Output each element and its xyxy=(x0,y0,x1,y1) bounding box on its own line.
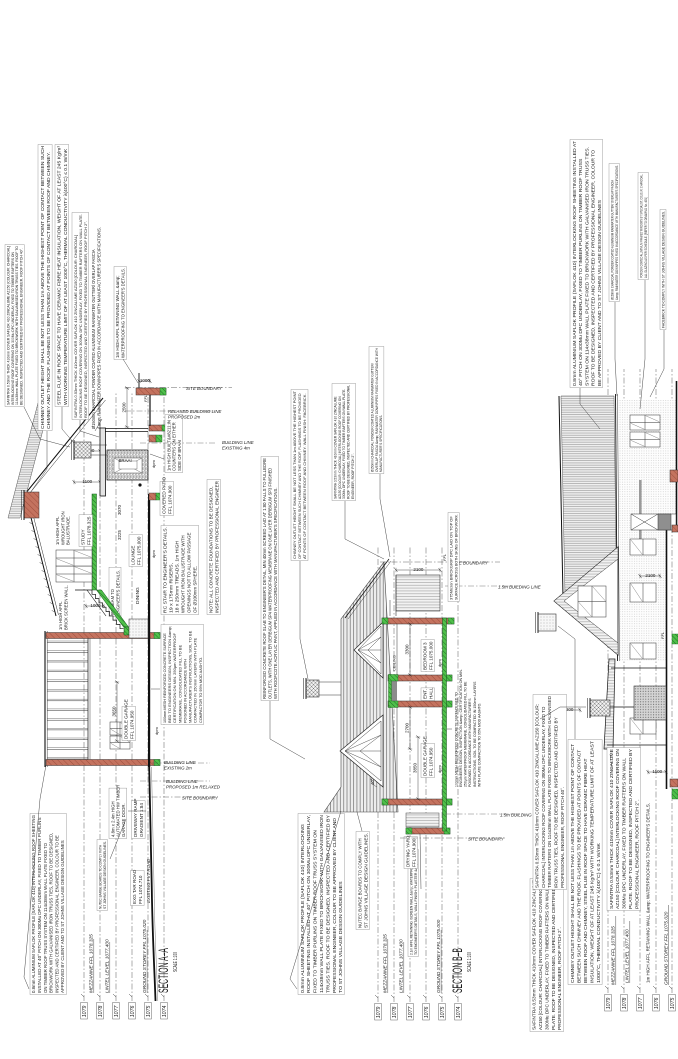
svg-text:1074: 1074 xyxy=(162,1006,168,1018)
svg-text:1074: 1074 xyxy=(456,1007,462,1019)
svg-text:AT POINTS OF CONTACT BETWEEN R: AT POINTS OF CONTACT BETWEEN ROOF AND CH… xyxy=(302,393,307,559)
svg-text:CEILING: CEILING xyxy=(392,655,397,671)
svg-text:Ø150mm CHARCOAL POWDER COATED: Ø150mm CHARCOAL POWDER COATED ALUMINIUM … xyxy=(610,179,614,300)
svg-text:INTERLOCKING ROOF COVERING ON: INTERLOCKING ROOF COVERING ON 300Mu DPC … xyxy=(11,251,15,405)
svg-text:BUILDING LINE: BUILDING LINE xyxy=(166,779,198,784)
svg-text:Ø150mm CHARCOAL POWDER COATED: Ø150mm CHARCOAL POWDER COATED ALUMINIUM … xyxy=(91,249,96,429)
svg-text:1076: 1076 xyxy=(424,1007,430,1019)
svg-text:ENGINEERS DESIGN, INSPECTION &: ENGINEERS DESIGN, INSPECTION &amp; CERTI… xyxy=(459,669,463,787)
svg-text:WITH PLATE COMPACTION TO 95% M: WITH PLATE COMPACTION TO 95% MOD AASHTO. xyxy=(477,703,481,787)
svg-text:LINTEL LEVEL 1077.400: LINTEL LEVEL 1077.400 xyxy=(105,939,111,993)
svg-text:&amp; RAINWATER DOWNPIPES FIXE: &amp; RAINWATER DOWNPIPES FIXED IN ACCOR… xyxy=(615,165,619,300)
svg-text:SITE BOUNDARY: SITE BOUNDARY xyxy=(182,796,219,801)
svg-text:0.8mm ALUMINIUM SAFLOK PROFILE: 0.8mm ALUMINIUM SAFLOK PROFILE [SAFLOK 4… xyxy=(31,815,36,993)
svg-text:FFL 1075.000: FFL 1075.000 xyxy=(429,641,434,670)
svg-text:SITE BOUNDARY: SITE BOUNDARY xyxy=(468,837,505,842)
svg-text:1000: 1000 xyxy=(90,603,101,608)
svg-text:SAFINTRA 0.53mm THICK 410mm CO: SAFINTRA 0.53mm THICK 410mm COVER SAFLOK… xyxy=(534,704,539,888)
svg-text:DINING: DINING xyxy=(135,587,141,604)
svg-text:FFL: FFL xyxy=(143,395,148,402)
svg-text:1000: 1000 xyxy=(140,378,151,383)
svg-text:WROUGHT IRON BALUSTRADE WITH: WROUGHT IRON BALUSTRADE WITH xyxy=(181,535,186,613)
svg-text:RELAXED BUILDING LINE: RELAXED BUILDING LINE xyxy=(168,409,222,414)
svg-text:LOUNGE: LOUNGE xyxy=(131,546,136,565)
svg-text:BETWEEN ROOF AND CHIMNEY, STEE: BETWEEN ROOF AND CHIMNEY, STEEL FLUE IN … xyxy=(583,758,589,983)
svg-text:NOTE: ALL CONCRETE FOUNDATIONS: NOTE: ALL CONCRETE FOUNDATIONS TO BE DES… xyxy=(209,487,214,614)
svg-text:&amp; RAINWATER DOWNPIPES FIXE: &amp; RAINWATER DOWNPIPES FIXED IN ACCOR… xyxy=(97,227,102,429)
svg-text:POISONED IN ACCORDANCE WITH MA: POISONED IN ACCORDANCE WITH MANUFACTURER… xyxy=(468,698,472,787)
svg-text:1078: 1078 xyxy=(98,1006,104,1018)
svg-text:AZ150 [COLOUR: CHARCOAL] INTER: AZ150 [COLOUR: CHARCOAL] INTERLOCKING RO… xyxy=(338,396,342,499)
svg-text:INSTALLED AT 40° PITCH ON 300M: INSTALLED AT 40° PITCH ON 300Mu DPC UNDE… xyxy=(37,817,42,993)
svg-text:1000°C, THERMAL CONDUCTIVITY λ: 1000°C, THERMAL CONDUCTIVITY λ(400°C) ≤ … xyxy=(596,842,602,983)
svg-text:ROOF TO BE DESIGNED, INSPECTED: ROOF TO BE DESIGNED, INSPECTED AND CERTI… xyxy=(347,385,351,499)
svg-text:INSTRUCTIONS, SOIL TO BE COMPA: INSTRUCTIONS, SOIL TO BE COMPACTED IN 15… xyxy=(473,681,477,787)
svg-text:EXG TAR ROAD: EXG TAR ROAD xyxy=(132,869,137,904)
svg-text:STEEL FLUE IN ROOF SPACE TO HA: STEEL FLUE IN ROOF SPACE TO HAVE CERAMIC… xyxy=(57,146,62,405)
svg-text:FFL: FFL xyxy=(442,554,447,561)
svg-text:ENGINEER'S DETAILS.: ENGINEER'S DETAILS. xyxy=(115,570,120,615)
svg-text:BETWEEN SUCH CHIMNEY AND THE R: BETWEEN SUCH CHIMNEY AND THE ROOF, FLASH… xyxy=(576,750,582,983)
svg-text:dpm: dpm xyxy=(437,765,442,773)
svg-text:2100: 2100 xyxy=(413,567,424,572)
svg-text:WITH ROOFCOTE ACRYLIC PAINT, A: WITH ROOFCOTE ACRYLIC PAINT, APPLIED IN … xyxy=(273,488,278,700)
svg-text:COMPACTOR TO 95% MOD AASHTO.: COMPACTOR TO 95% MOD AASHTO. xyxy=(198,657,203,723)
svg-text:BRICK SCREEN WALL.: BRICK SCREEN WALL. xyxy=(63,585,68,630)
svg-text:300Mu DPC UNDERLAY, FIXED TO T: 300Mu DPC UNDERLAY, FIXED TO TIMBER RAFT… xyxy=(342,389,346,499)
svg-text:SECTION B–B: SECTION B–B xyxy=(450,948,465,993)
svg-text:SURFACE ACROSS BOTH SKINS OF B: SURFACE ACROSS BOTH SKINS OF BRICKWORK. xyxy=(455,514,459,600)
svg-text:DRYING YARD: DRYING YARD xyxy=(406,835,411,867)
svg-text:SIDE OF BRAAI: SIDE OF BRAAI xyxy=(177,440,182,471)
svg-text:1077: 1077 xyxy=(638,997,644,1010)
svg-text:STUDY: STUDY xyxy=(81,529,86,545)
svg-text:1078: 1078 xyxy=(622,998,628,1010)
svg-text:EXISTING 4m: EXISTING 4m xyxy=(222,446,250,451)
svg-text:OF Ø100mm SPHERE.: OF Ø100mm SPHERE. xyxy=(193,566,198,613)
svg-text:3650: 3650 xyxy=(112,706,117,717)
svg-text:BUILDING LINE: BUILDING LINE xyxy=(222,440,254,445)
svg-text:OUTLETS, WITH ONE LAYER DERBIG: OUTLETS, WITH ONE LAYER DERBIGUM SP4 WAT… xyxy=(267,468,272,699)
svg-text:DOUBLE GARAGE: DOUBLE GARAGE xyxy=(423,736,428,776)
svg-text:OVERLAP FASCIA &amp; RAINWATER: OVERLAP FASCIA &amp; RAINWATER DOWNPIPES… xyxy=(375,347,379,472)
svg-text:AZ150 [COLOUR: CHARCOAL] INTER: AZ150 [COLOUR: CHARCOAL] INTERLOCKING RO… xyxy=(615,748,621,909)
svg-text:3300: 3300 xyxy=(405,644,410,655)
svg-text:WATERPROOFING TO ENGINEER'S DE: WATERPROOFING TO ENGINEER'S DETAILS. xyxy=(121,268,126,358)
svg-text:FFL 1074.950: FFL 1074.950 xyxy=(130,710,135,739)
svg-text:COUNTERS ON EITHER: COUNTERS ON EITHER xyxy=(172,422,177,471)
svg-text:1076: 1076 xyxy=(654,998,660,1010)
svg-text:19 x 175mm RISERS,: 19 x 175mm RISERS, xyxy=(169,563,174,613)
svg-text:CHARCOAL] INTERLOCKING ROOF CO: CHARCOAL] INTERLOCKING ROOF COVERING ON … xyxy=(541,706,546,888)
svg-text:40° PITCH ON 300Mu DPC UNDERLA: 40° PITCH ON 300Mu DPC UNDERLAY, FIXED T… xyxy=(578,159,584,386)
svg-text:PROPOSED 1m RELAXED: PROPOSED 1m RELAXED xyxy=(166,785,221,790)
svg-text:COVERED PATIO: COVERED PATIO xyxy=(162,476,167,514)
svg-text:ENT.: ENT. xyxy=(423,689,428,699)
svg-text:1076: 1076 xyxy=(130,1006,136,1018)
svg-text:FFL 1074.950: FFL 1074.950 xyxy=(429,747,434,776)
svg-text:1100: 1100 xyxy=(652,769,662,774)
svg-text:ROOF TO BE DESIGNED, INSPECTED: ROOF TO BE DESIGNED, INSPECTED AND CERTI… xyxy=(84,221,88,418)
svg-text:1079: 1079 xyxy=(82,1006,88,1018)
svg-text:SAFINTRA 0.53mm THICK 410mm CO: SAFINTRA 0.53mm THICK 410mm COVER SAFLOK… xyxy=(74,235,78,418)
svg-text:114x38mm WALL PLATE FIXED TO B: 114x38mm WALL PLATE FIXED TO BRICKWORK W… xyxy=(319,814,325,993)
svg-text:40°: 40° xyxy=(370,778,375,785)
svg-text:SECTION A–A: SECTION A–A xyxy=(156,948,171,993)
svg-text:CHIMNEY OUTLET HEIGHT SHALL BE: CHIMNEY OUTLET HEIGHT SHALL BE NOT LESS … xyxy=(570,744,576,983)
svg-text:TRUSS TIES. ROOF TO BE DESIGNE: TRUSS TIES. ROOF TO BE DESIGNED, INSPECT… xyxy=(325,814,331,993)
svg-text:RC STAIR TO ENGINEER'S DETAILS: RC STAIR TO ENGINEER'S DETAILS. xyxy=(163,527,168,613)
svg-text:1100: 1100 xyxy=(82,479,92,484)
svg-text:WITH WORKING TEMPERATURE LIMIT: WITH WORKING TEMPERATURE LIMIT OF AT LEA… xyxy=(63,148,68,405)
svg-text:ON TIMBER ROOF TRUSS SYSTEM ON: ON TIMBER ROOF TRUSS SYSTEM ON 114x38mm … xyxy=(43,842,48,993)
svg-text:1078: 1078 xyxy=(392,1007,398,1019)
svg-text:100mm MESH REINFORCED CONCRETE: 100mm MESH REINFORCED CONCRETE SURFACE B… xyxy=(455,692,459,787)
svg-text:SCALE 1:100: SCALE 1:100 xyxy=(467,952,473,972)
svg-text:2.1m AFFL RETAINING /SCREEN WA: 2.1m AFFL RETAINING /SCREEN WALL &amp; W… xyxy=(409,856,413,955)
svg-text:2100: 2100 xyxy=(645,573,656,578)
svg-text:BRICKWORK WITH GALVANISED IRON: BRICKWORK WITH GALVANISED IRON TRUSS TIE… xyxy=(49,833,54,993)
svg-text:CHIMNEY AND THE ROOF. FLASHING: CHIMNEY AND THE ROOF. FLASHINGS TO BE PR… xyxy=(46,152,52,429)
svg-text:PLATE. ROOF TO BE DESIGNED, IN: PLATE. ROOF TO BE DESIGNED, INSPECTED AN… xyxy=(628,748,634,909)
svg-text:ST JOHNS VILLAGE DESIGN GUIDEL: ST JOHNS VILLAGE DESIGN GUIDELINES. xyxy=(363,833,368,928)
svg-text:ROOF TO BE DESIGNED, INSPECTED: ROOF TO BE DESIGNED, INSPECTED AND CERTI… xyxy=(591,150,597,386)
svg-text:250μm WATERPROOF MEMBRANE, CON: 250μm WATERPROOF MEMBRANE, CONSOLIDATED … xyxy=(464,681,468,787)
svg-text:1075: 1075 xyxy=(146,1006,152,1018)
svg-text:CHIMNEY OUTLET HEIGHT SHALL BE: CHIMNEY OUTLET HEIGHT SHALL BE NOT LESS … xyxy=(40,145,46,429)
svg-text:1.5m BUILDING LINE: 1.5m BUILDING LINE xyxy=(498,585,541,590)
svg-text:dpm: dpm xyxy=(437,659,442,667)
svg-text:BEDROOM 3: BEDROOM 3 xyxy=(423,642,428,670)
svg-text:dpm: dpm xyxy=(151,550,156,558)
svg-text:PROFESSIONAL ENGINEER, ROOF PI: PROFESSIONAL ENGINEER, ROOF PITCH 40°. xyxy=(560,787,565,888)
svg-text:0.8mm ALUMINIUM SAFLOK PROFILE: 0.8mm ALUMINIUM SAFLOK PROFILE (SAFLOK 4… xyxy=(572,141,578,386)
svg-text:BE DESIGNED, INSPECTED AND CER: BE DESIGNED, INSPECTED AND CERTIFIED BY … xyxy=(20,248,24,405)
svg-text:ST JOHNS VILLAGE DESIGN GUIDEL: ST JOHNS VILLAGE DESIGN GUIDELINES. xyxy=(103,841,107,909)
svg-text:1075: 1075 xyxy=(670,998,676,1010)
svg-text:NUTEC BARGE BOARDS TO COMPLY W: NUTEC BARGE BOARDS TO COMPLY WITH xyxy=(98,844,102,909)
svg-text:GRADIENT 1:84: GRADIENT 1:84 xyxy=(139,803,144,837)
svg-text:IRON TRUSS TIES, ROOF TO BE DE: IRON TRUSS TIES, ROOF TO BE DESIGNED, IN… xyxy=(554,717,559,888)
svg-text:300Mu DPC UNDERLAY, FIXED TO T: 300Mu DPC UNDERLAY, FIXED TO TIMBER RAFT… xyxy=(544,888,549,1030)
svg-text:2700: 2700 xyxy=(405,722,410,733)
svg-text:FFL 1074.900: FFL 1074.900 xyxy=(412,838,417,867)
svg-text:AUTOMATED HW TIMBER: AUTOMATED HW TIMBER xyxy=(116,785,121,837)
svg-text:18 x 250mm TREADS. 1m HIGH: 18 x 250mm TREADS. 1m HIGH xyxy=(175,541,180,613)
svg-text:EXISTING PVT ROAD: EXISTING PVT ROAD xyxy=(146,858,151,903)
svg-text:1079: 1079 xyxy=(376,1007,382,1019)
svg-text:PROPOSED 2m: PROPOSED 2m xyxy=(168,415,201,420)
svg-text:PROFESSIONAL ENGINEER, COLOUR: PROFESSIONAL ENGINEER, COLOUR TO BE APPR… xyxy=(332,817,338,993)
svg-text:3850: 3850 xyxy=(413,762,418,773)
svg-text:INSULATION, WEIGHT OF AT LEAST: INSULATION, WEIGHT OF AT LEAST 245 Kg/m³… xyxy=(589,741,595,983)
svg-text:114x38mm WALL PLATE FIXED TO B: 114x38mm WALL PLATE FIXED TO BRICKWORK W… xyxy=(15,246,19,405)
svg-text:1m HIGH BUILT&#8211;IN: 1m HIGH BUILT&#8211;IN xyxy=(166,420,171,471)
svg-text:PLATE. ROOF TO BE DESIGNED, IN: PLATE. ROOF TO BE DESIGNED, INSPECTED AN… xyxy=(551,880,556,1030)
svg-text:REINFORCED CONCRETE ROOF SLAB: REINFORCED CONCRETE ROOF SLAB TO ENGINEE… xyxy=(262,458,267,699)
svg-text:SAFINTRA 0.53mm THICK 410mm CO: SAFINTRA 0.53mm THICK 410mm COVER SAFLOK… xyxy=(532,880,537,1030)
svg-text:DOUBLE GARAGE: DOUBLE GARAGE xyxy=(124,699,129,739)
svg-text:EXISTING 2m: EXISTING 2m xyxy=(164,766,192,771)
svg-text:SITE BOUNDARY: SITE BOUNDARY xyxy=(186,386,223,391)
svg-text:APPROVED BY CLIENT AND TO ST J: APPROVED BY CLIENT AND TO ST JOHNS VILLA… xyxy=(60,840,65,993)
svg-text:ROOF SHEETING INSTALLED AT 40°: ROOF SHEETING INSTALLED AT 40° PITCH ON … xyxy=(306,815,312,993)
svg-text:dpm: dpm xyxy=(154,727,159,735)
svg-text:3225: 3225 xyxy=(117,529,122,540)
svg-text:1077: 1077 xyxy=(114,1005,120,1018)
svg-text:1m HIGH AFFL RETAINING WALL &a: 1m HIGH AFFL RETAINING WALL &amp; xyxy=(115,276,120,359)
svg-text:BALUSTRADE.: BALUSTRADE. xyxy=(66,516,71,545)
svg-text:NUTEC BARGE BOARDS TO COMPLY W: NUTEC BARGE BOARDS TO COMPLY WITH xyxy=(358,838,363,928)
svg-text:1m HIGH AFFL RETAINING WALL &a: 1m HIGH AFFL RETAINING WALL &amp; WATERP… xyxy=(645,803,650,983)
svg-text:375Micron BRICKGRIP DPC LAID O: 375Micron BRICKGRIP DPC LAID ON TOP OF xyxy=(450,515,454,600)
svg-text:DRIVEWAY RAMP: DRIVEWAY RAMP xyxy=(133,799,138,837)
svg-text:MEZZANINE FFL 1078.325: MEZZANINE FFL 1078.325 xyxy=(89,934,95,993)
svg-text:FFL 1078.325: FFL 1078.325 xyxy=(87,516,92,545)
svg-text:OPENINGS NOT TO ALLOW PASSAGE: OPENINGS NOT TO ALLOW PASSAGE xyxy=(187,533,192,614)
svg-text:1075: 1075 xyxy=(440,1007,446,1019)
svg-text:SYSTEM ON 114x38mm WALL PLATE: SYSTEM ON 114x38mm WALL PLATE FIXED TO B… xyxy=(584,147,590,386)
svg-text:FACEBRICK TO COMPLY WITH ST JO: FACEBRICK TO COMPLY WITH ST JOHNS VILLAG… xyxy=(661,211,665,328)
svg-text:300Mu DPC UNDERLAY, FIXED TO T: 300Mu DPC UNDERLAY, FIXED TO TIMBER RAFT… xyxy=(622,758,628,909)
svg-text:ALL GLAZING AS PER SCHEDULE. [: ALL GLAZING AS PER SCHEDULE. [REFER TO D… xyxy=(644,197,648,278)
svg-text:1079: 1079 xyxy=(606,998,612,1010)
svg-text:dpm: dpm xyxy=(151,460,156,468)
svg-text:BRAAI: BRAAI xyxy=(119,458,132,463)
svg-text:3070: 3070 xyxy=(117,504,122,515)
svg-text:4.8m x 2.4m HIGH: 4.8m x 2.4m HIGH xyxy=(110,801,115,837)
svg-text:BUILDING LINE: BUILDING LINE xyxy=(164,760,196,765)
svg-text:SAFINTRA 0.53mm THICK 410mm CO: SAFINTRA 0.53mm THICK 410mm COVER SAFLOK… xyxy=(6,246,10,405)
svg-text:0.8mm ALUMINIUM SAFLOK PROFILE: 0.8mm ALUMINIUM SAFLOK PROFILE (SAFLOK 4… xyxy=(300,824,306,993)
svg-text:TIMBER RAFTERS ON 114x38mm WAL: TIMBER RAFTERS ON 114x38mm WALL PLATE FI… xyxy=(547,696,552,888)
svg-text:SCALE 1:100: SCALE 1:100 xyxy=(173,952,179,972)
svg-text:TO ST JOHNS VILLAGE DESIGN GUI: TO ST JOHNS VILLAGE DESIGN GUIDELINES xyxy=(338,881,344,993)
svg-text:1077: 1077 xyxy=(408,1006,414,1019)
svg-text:PROFESSIONAL ENGINEER, ROOF PI: PROFESSIONAL ENGINEER, ROOF PITCH 2°. xyxy=(634,799,640,909)
svg-text:INSPECTED AND CERTIFIED BY PRO: INSPECTED AND CERTIFIED BY PROFESSIONAL … xyxy=(54,835,59,993)
svg-text:BE APPROVED BY CLIENT AND TO S: BE APPROVED BY CLIENT AND TO ST JOHNS VI… xyxy=(597,200,603,386)
svg-text:AZ150 [COLOUR: CHARCOAL] INTER: AZ150 [COLOUR: CHARCOAL] INTERLOCKING RO… xyxy=(538,880,543,1030)
svg-text:ENGINEER, ROOF PITCH 2°.: ENGINEER, ROOF PITCH 2°. xyxy=(351,453,355,499)
svg-text:FFL: FFL xyxy=(660,632,665,639)
svg-text:FIXED TO TIMBER PURLINS ON TIM: FIXED TO TIMBER PURLINS ON TIMBER ROOF T… xyxy=(313,830,319,993)
svg-text:INTERLOCKING ROOF COVERING ON: INTERLOCKING ROOF COVERING ON 300Mu DPC … xyxy=(79,214,83,418)
svg-text:MANUFACTURER’S SPECIFICATIONS.: MANUFACTURER’S SPECIFICATIONS. xyxy=(379,415,383,472)
svg-text:Ø150mm CHARCOAL POWDER COATED: Ø150mm CHARCOAL POWDER COATED ALUMINIUM … xyxy=(370,363,374,472)
svg-text:PROFESSIONAL ENGINEER, ROOF PI: PROFESSIONAL ENGINEER, ROOF PITCH 2°. xyxy=(557,927,562,1030)
svg-text:FFL 1074.710: FFL 1074.710 xyxy=(138,875,143,904)
svg-text:FFL 1075.000: FFL 1075.000 xyxy=(137,536,142,565)
svg-text:FFL 1074.900: FFL 1074.900 xyxy=(168,485,173,514)
svg-text:SAFINTRA 0.53mm THICK 410mm CO: SAFINTRA 0.53mm THICK 410mm COVER SAFLOK… xyxy=(333,396,337,499)
svg-text:SAFINTRA 0.53mm THICK 410mm CO: SAFINTRA 0.53mm THICK 410mm COVER SAFLOK… xyxy=(609,749,615,909)
svg-text:HALL: HALL xyxy=(429,687,434,699)
svg-text:POWDER COATED ALUMINIUM FRAMED: POWDER COATED ALUMINIUM FRAMED WINDOWS B… xyxy=(639,174,643,278)
svg-text:INSPECTED AND CERTIFIED BY PRO: INSPECTED AND CERTIFIED BY PROFESSIONAL … xyxy=(215,480,220,613)
